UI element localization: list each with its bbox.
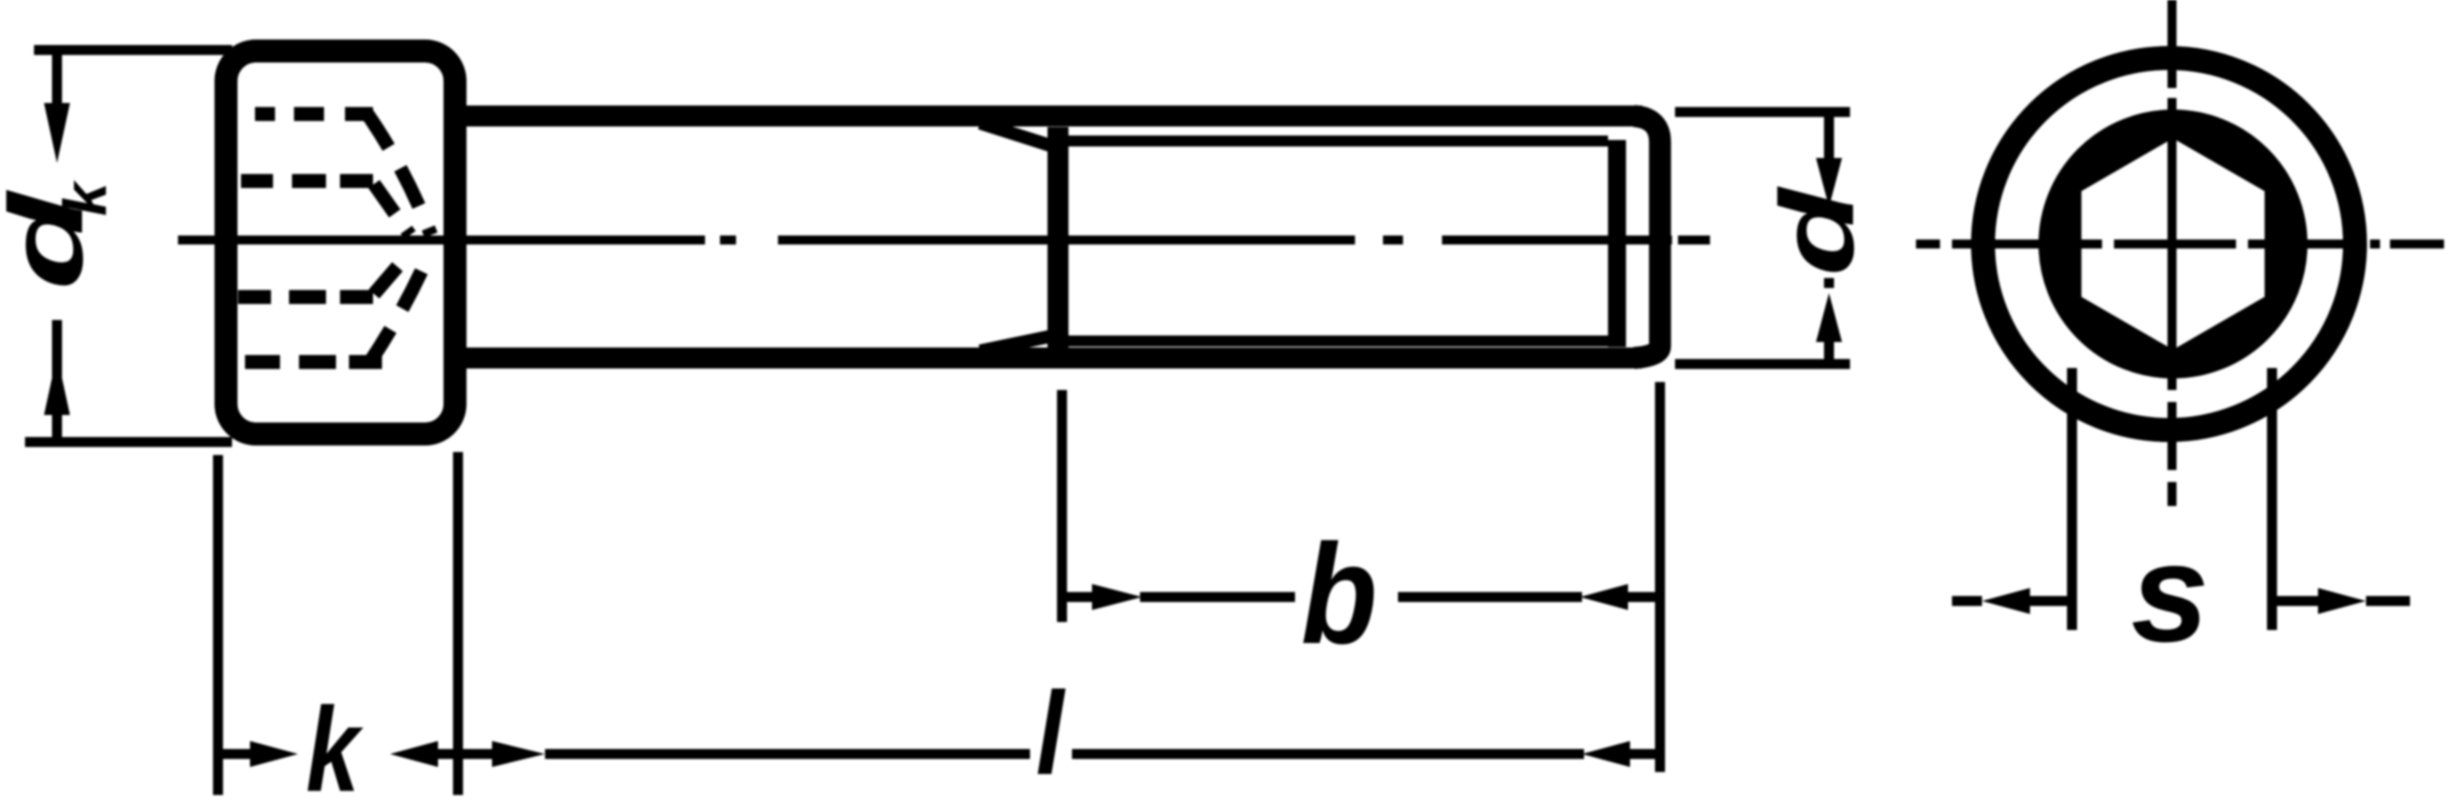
svg-text:b: b — [1301, 516, 1377, 674]
svg-text:k: k — [52, 180, 119, 216]
svg-text:k: k — [306, 684, 363, 800]
svg-text:d: d — [1759, 186, 1876, 276]
svg-text:s: s — [2131, 514, 2209, 671]
svg-text:l: l — [1036, 668, 1066, 799]
